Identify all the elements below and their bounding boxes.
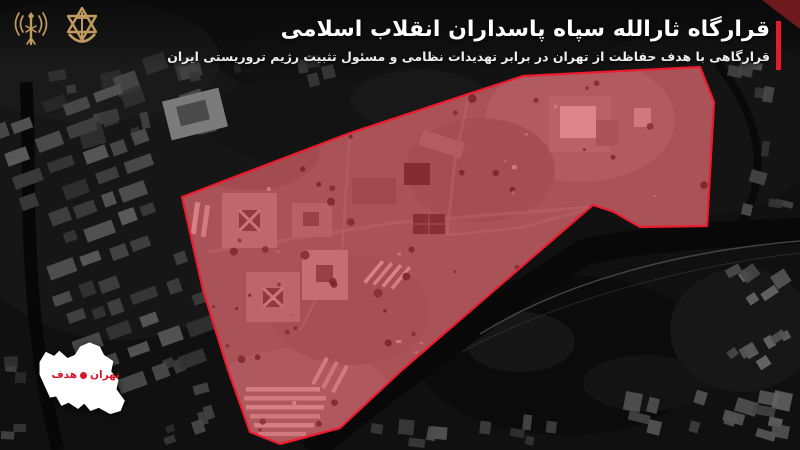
iran-inset-map: تهران هدف [26,337,130,433]
infographic: قرارگاه ثارالله سپاه پاسداران انقلاب اسل… [0,0,800,450]
map-target-label: هدف [51,369,77,381]
target-marker-dot [80,372,87,379]
map-label: تهران هدف [51,369,120,381]
iran-map-silhouette [26,337,130,431]
map-city-label: تهران [90,369,120,381]
